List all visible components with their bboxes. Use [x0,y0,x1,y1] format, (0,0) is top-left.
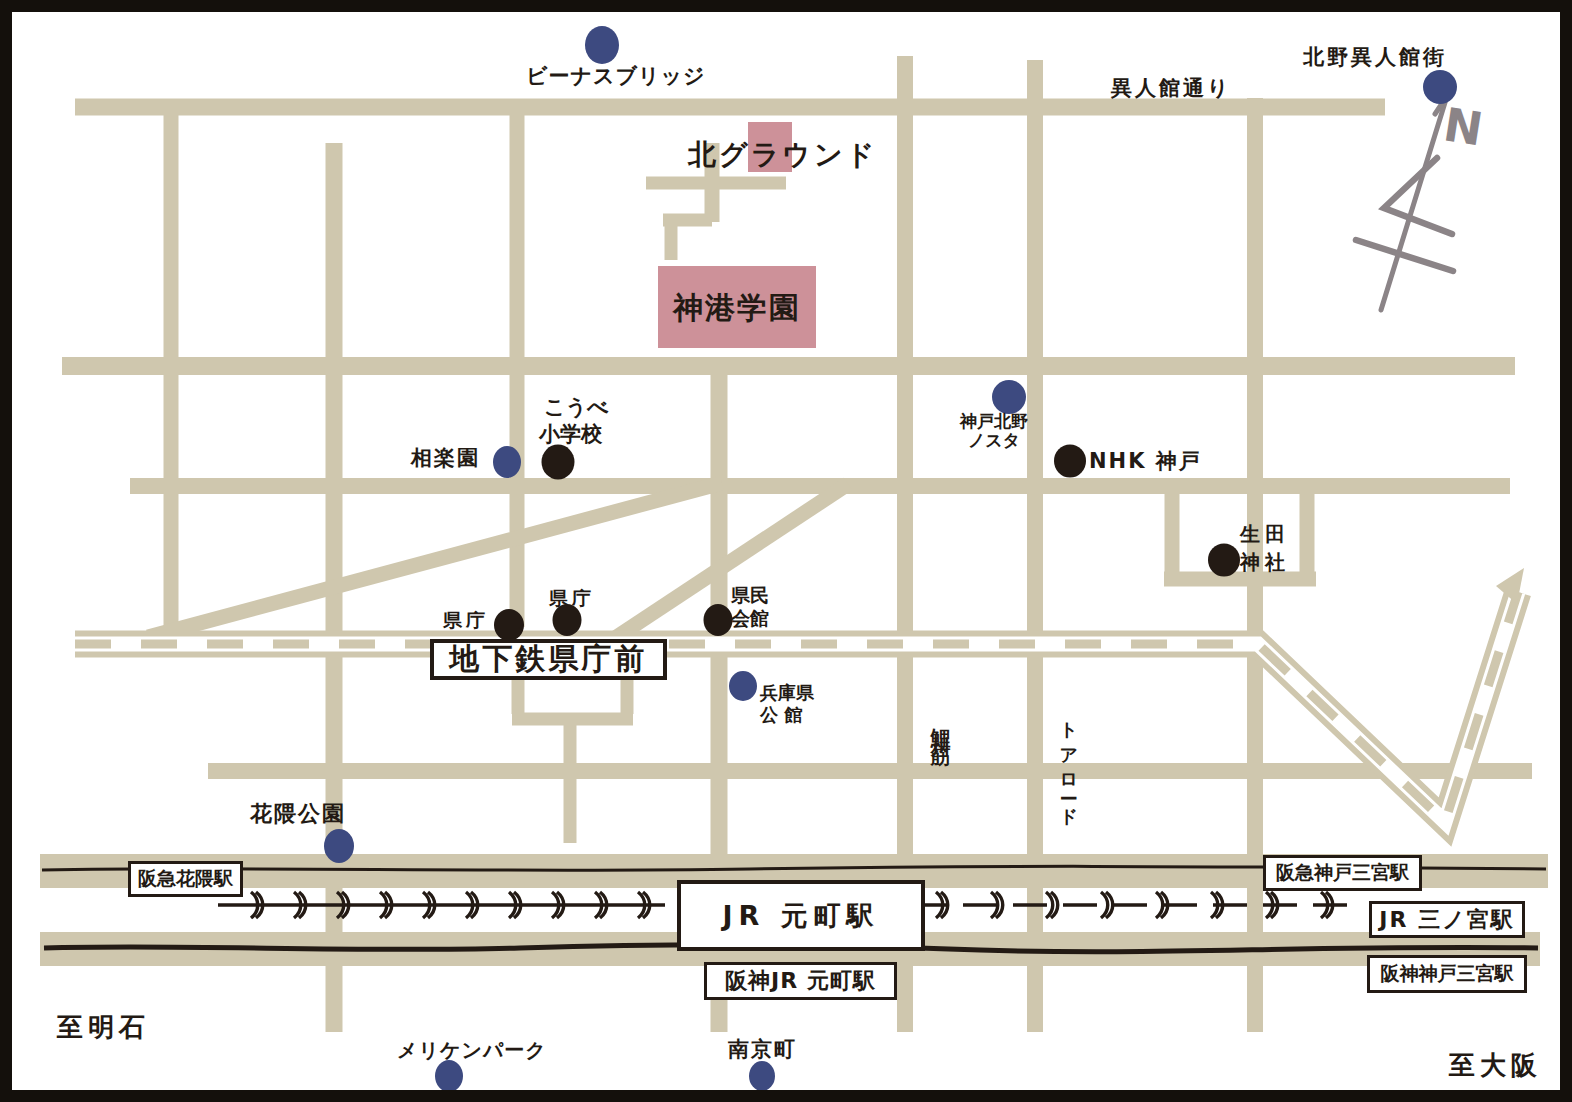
sorakuen-marker [493,446,521,478]
ikuta-jinja-label: 生田 神社 [1240,520,1290,576]
meriken-park-label: メリケンパーク [397,1038,547,1062]
kitano-ijinkangai-label: 北野異人館街 [1303,45,1447,70]
station-jr-motomachi: JR 元町駅 [677,880,925,951]
to-osaka-label: 至大阪 [1449,1050,1542,1081]
kenmin-line1: 県民 [731,584,769,607]
koikawa-suji-label: 鯉川筋 [929,712,953,739]
venus-bridge-marker [585,26,619,64]
kenmin-kaikan-label: 県民 会館 [731,584,769,630]
kencho-east-label: 県庁 [549,587,595,610]
ijinkan-dori-label: 異人館通り [1111,76,1232,101]
nhk-kobe-marker [1054,445,1086,478]
kobe-kitano-nosuta-marker [992,380,1026,414]
ikuta-jinja-marker [1208,544,1240,577]
hyogo-line2: 公 館 [760,704,814,726]
road-diagonal-long [148,483,722,637]
station-chikatetsu-kenchomae: 地下鉄県庁前 [430,639,667,680]
hyogo-line1: 兵庫県 [760,682,814,704]
station-hanshin-jr-motomachi: 阪神JR 元町駅 [704,962,897,1000]
meriken-park-marker [435,1060,463,1092]
station-hankyu-kobe-sannomiya: 阪急神戸三宮駅 [1263,855,1422,891]
kobe-elementary-marker [542,445,575,480]
kita-ground-label: 北グラウンド [688,138,877,172]
kobe-access-map: ビーナスブリッジ 北野異人館街 異人館通り 北グラウンド 神港学園 こうべ 小学… [0,0,1572,1102]
nankinmachi-label: 南京町 [728,1037,797,1062]
station-jr-sannomiya: JR 三ノ宮駅 [1369,901,1525,938]
kobe-kitano-nosuta-label: 神戸北野 ノスタ [944,412,1044,450]
station-hanshin-kobe-sannomiya: 阪神神戸三宮駅 [1367,955,1527,993]
station-hankyu-hanakuma: 阪急花隈駅 [128,861,243,897]
kenmin-kaikan-marker [704,604,733,636]
kencho-west-label: 県庁 [443,609,489,632]
kenmin-line2: 会館 [731,607,769,630]
hanakuma-koen-marker [324,829,354,863]
nankinmachi-marker [749,1061,775,1091]
sorakuen-label: 相楽園 [411,446,480,471]
hyogo-kenkokan-marker [729,671,757,701]
kobe-elementary-label: こうべ 小学校 [539,394,608,448]
venus-bridge-label: ビーナスブリッジ [526,64,705,89]
nosuta-line1: 神戸北野 [944,412,1044,431]
compass-arrow-icon [1356,96,1453,310]
to-akashi-label: 至明石 [57,1012,150,1043]
hanakuma-koen-label: 花隈公園 [250,801,346,827]
tor-road-label: トアロード [1058,709,1080,821]
ikuta-line2: 神社 [1240,548,1290,576]
nosuta-line2: ノスタ [944,431,1044,450]
nhk-kobe-label: NHK 神戸 [1089,449,1202,474]
ikuta-line1: 生田 [1240,520,1290,548]
shinko-gakuen-label: 神港学園 [658,290,816,326]
kobe-elementary-line2: 小学校 [539,421,608,448]
kencho-west-marker [494,609,524,641]
hyogo-kenkokan-label: 兵庫県 公 館 [760,682,814,726]
kobe-elementary-line1: こうべ [539,394,608,421]
